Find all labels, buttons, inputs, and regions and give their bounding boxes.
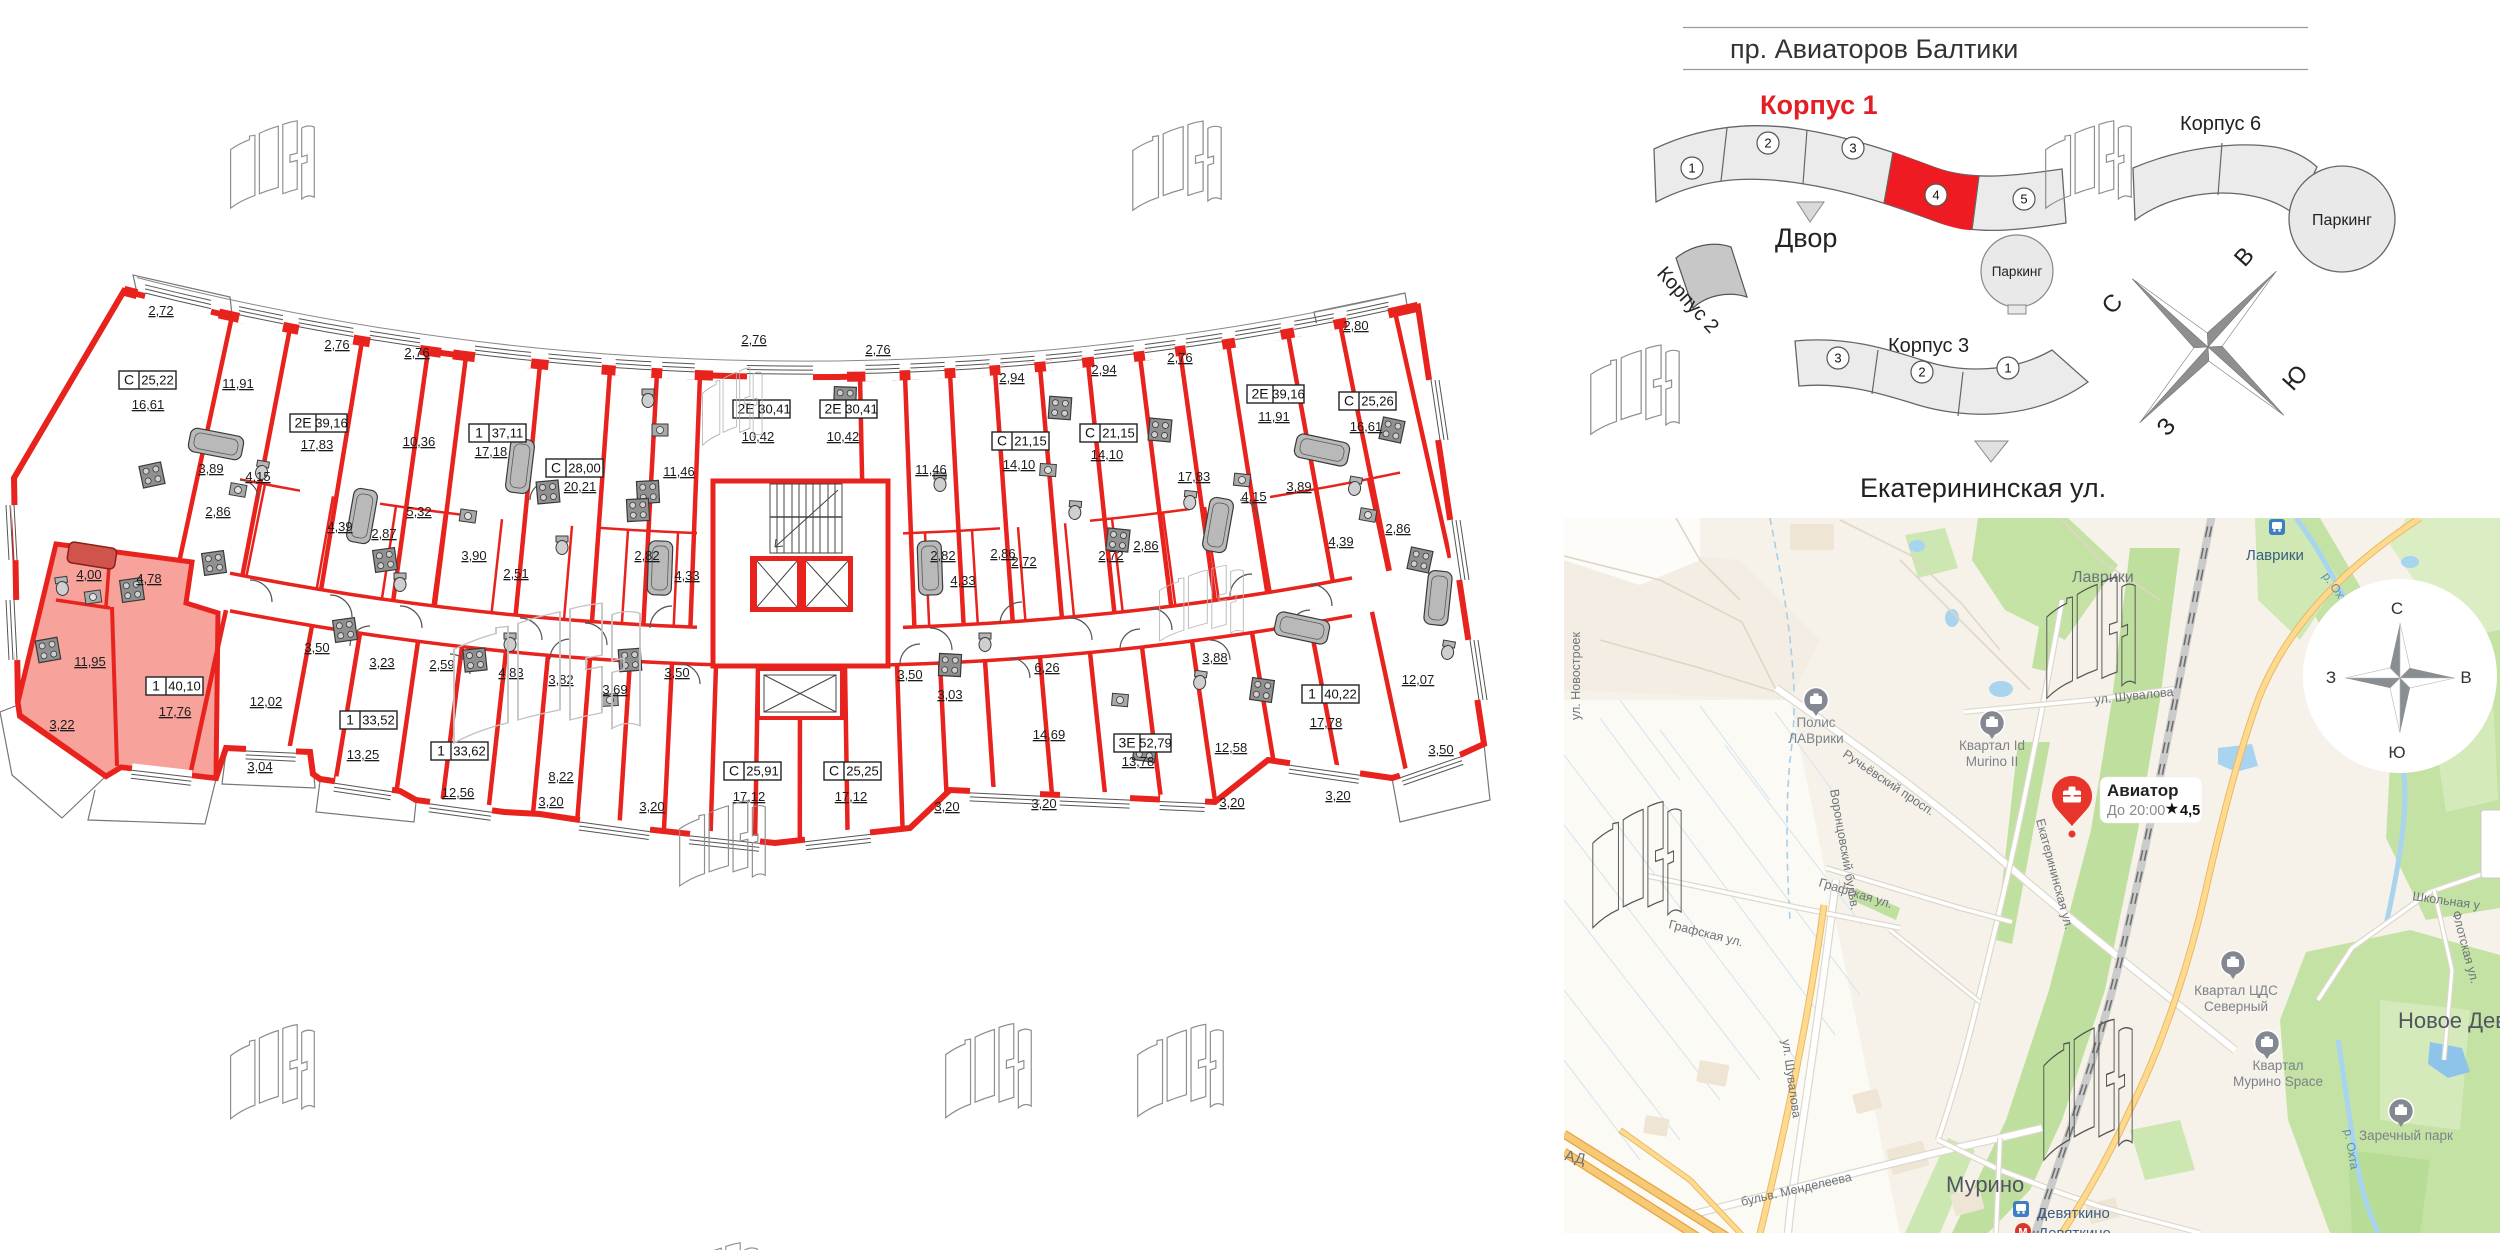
svg-text:До 20:00: До 20:00 [2107, 803, 2165, 819]
svg-text:3,88: 3,88 [1202, 650, 1227, 665]
svg-text:17,12: 17,12 [835, 789, 868, 804]
svg-text:Екатерининская ул.: Екатерининская ул. [1860, 473, 2106, 503]
svg-text:2,94: 2,94 [999, 370, 1024, 385]
svg-text:Ю: Ю [2388, 743, 2405, 762]
svg-text:8,22: 8,22 [548, 769, 573, 784]
svg-text:3,04: 3,04 [247, 759, 272, 774]
svg-text:16,61: 16,61 [1350, 419, 1383, 434]
svg-text:2,82: 2,82 [634, 548, 659, 563]
svg-text:2: 2 [1918, 365, 1925, 380]
svg-text:Авиатор: Авиатор [2107, 781, 2179, 800]
svg-text:21,15: 21,15 [1102, 426, 1135, 441]
svg-text:4: 4 [1932, 188, 1939, 203]
svg-text:4,39: 4,39 [327, 519, 352, 534]
svg-text:2,76: 2,76 [404, 345, 429, 360]
svg-text:1: 1 [475, 425, 483, 441]
svg-text:пр. Авиаторов Балтики: пр. Авиаторов Балтики [1730, 34, 2018, 64]
svg-text:4,33: 4,33 [950, 573, 975, 588]
svg-text:ул. Новостроек: ул. Новостроек [1569, 632, 1583, 720]
svg-text:Мурино Space: Мурино Space [2233, 1074, 2323, 1089]
svg-text:Лаврики: Лаврики [2072, 569, 2134, 586]
svg-text:4,33: 4,33 [674, 568, 699, 583]
svg-text:Квартал Id: Квартал Id [1959, 738, 2025, 753]
svg-text:25,22: 25,22 [141, 373, 174, 388]
svg-text:2,72: 2,72 [1098, 548, 1123, 563]
svg-text:3,20: 3,20 [639, 799, 664, 814]
svg-text:1: 1 [437, 743, 445, 759]
svg-text:2,86: 2,86 [1133, 538, 1158, 553]
svg-text:3,23: 3,23 [369, 655, 394, 670]
svg-text:Полис: Полис [1796, 715, 1835, 730]
svg-text:2,76: 2,76 [324, 337, 349, 352]
svg-text:С: С [997, 433, 1007, 449]
svg-text:2Е: 2Е [1251, 386, 1268, 402]
svg-text:3,50: 3,50 [304, 640, 329, 655]
svg-text:1: 1 [1308, 686, 1316, 702]
svg-text:3: 3 [1834, 351, 1841, 366]
svg-text:1: 1 [1688, 161, 1695, 176]
svg-text:С: С [1085, 425, 1095, 441]
svg-text:4,39: 4,39 [1328, 534, 1353, 549]
svg-text:ЛАВрики: ЛАВрики [1788, 731, 1843, 746]
svg-text:6,26: 6,26 [1034, 660, 1059, 675]
svg-text:2,80: 2,80 [1343, 318, 1368, 333]
svg-text:2,59: 2,59 [429, 657, 454, 672]
svg-text:10,42: 10,42 [827, 429, 860, 444]
svg-text:39,16: 39,16 [315, 416, 348, 431]
svg-text:16,61: 16,61 [132, 397, 165, 412]
svg-text:Мурино: Мурино [1946, 1172, 2024, 1197]
svg-text:Квартал ЦДС: Квартал ЦДС [2194, 983, 2278, 998]
svg-text:40,10: 40,10 [168, 679, 201, 694]
svg-text:30,41: 30,41 [758, 402, 791, 417]
svg-text:17,18: 17,18 [475, 444, 508, 459]
svg-text:3,20: 3,20 [1031, 796, 1056, 811]
svg-text:11,46: 11,46 [915, 462, 947, 477]
svg-text:2,51: 2,51 [503, 566, 528, 581]
svg-text:10,36: 10,36 [403, 434, 436, 449]
svg-text:С: С [551, 460, 561, 476]
svg-text:25,26: 25,26 [1361, 394, 1394, 409]
svg-text:Паркинг: Паркинг [2312, 212, 2372, 229]
svg-text:4,83: 4,83 [498, 665, 523, 680]
svg-text:11,46: 11,46 [663, 464, 695, 479]
svg-text:30,41: 30,41 [845, 402, 878, 417]
svg-text:С: С [124, 372, 134, 388]
svg-text:1: 1 [346, 712, 354, 728]
svg-text:2,72: 2,72 [148, 303, 173, 318]
svg-text:17,83: 17,83 [1178, 469, 1211, 484]
svg-text:17,76: 17,76 [159, 704, 192, 719]
svg-text:37,11: 37,11 [492, 426, 524, 441]
svg-text:13,25: 13,25 [347, 747, 380, 762]
svg-text:3,50: 3,50 [1428, 742, 1453, 757]
svg-text:4,5: 4,5 [2180, 803, 2200, 819]
svg-text:3,50: 3,50 [897, 667, 922, 682]
svg-text:3,90: 3,90 [461, 548, 486, 563]
svg-text:Паркинг: Паркинг [1992, 264, 2043, 279]
svg-text:С: С [829, 763, 839, 779]
svg-text:3,69: 3,69 [602, 682, 627, 697]
svg-text:28,00: 28,00 [568, 461, 601, 476]
svg-text:Лаврики: Лаврики [2246, 547, 2304, 564]
svg-text:5,32: 5,32 [406, 504, 431, 519]
svg-text:С: С [2391, 599, 2403, 618]
svg-text:14,10: 14,10 [1003, 457, 1036, 472]
svg-text:З: З [2326, 668, 2336, 687]
svg-text:3,22: 3,22 [49, 717, 74, 732]
svg-text:14,69: 14,69 [1033, 727, 1066, 742]
svg-text:4,00: 4,00 [76, 567, 101, 582]
svg-text:25,91: 25,91 [746, 764, 779, 779]
svg-text:С: С [729, 763, 739, 779]
svg-text:3,20: 3,20 [538, 794, 563, 809]
svg-text:В: В [2460, 668, 2471, 687]
svg-text:33,62: 33,62 [453, 744, 486, 759]
svg-text:12,58: 12,58 [1215, 740, 1248, 755]
svg-text:17,83: 17,83 [301, 437, 334, 452]
svg-text:12,56: 12,56 [442, 785, 475, 800]
svg-text:11,91: 11,91 [1258, 409, 1290, 424]
svg-text:Девяткино: Девяткино [2037, 1205, 2110, 1222]
svg-text:5: 5 [2020, 192, 2027, 207]
svg-text:11,91: 11,91 [222, 376, 254, 391]
svg-text:3,03: 3,03 [937, 687, 962, 702]
svg-text:2,72: 2,72 [1011, 554, 1036, 569]
svg-text:2,94: 2,94 [1091, 362, 1116, 377]
svg-text:Корпус 6: Корпус 6 [2180, 113, 2261, 135]
svg-text:14,10: 14,10 [1091, 447, 1124, 462]
svg-text:25,25: 25,25 [846, 764, 879, 779]
svg-text:12,07: 12,07 [1402, 672, 1435, 687]
svg-text:Заречный парк: Заречный парк [2359, 1128, 2453, 1143]
svg-text:2,82: 2,82 [930, 548, 955, 563]
svg-text:3,20: 3,20 [934, 799, 959, 814]
svg-text:2,76: 2,76 [1167, 350, 1192, 365]
svg-text:3,89: 3,89 [1286, 479, 1311, 494]
svg-text:17,78: 17,78 [1310, 715, 1343, 730]
svg-text:2: 2 [1764, 136, 1771, 151]
svg-text:4,15: 4,15 [1241, 489, 1266, 504]
svg-text:17,12: 17,12 [733, 789, 766, 804]
svg-text:1: 1 [2004, 361, 2011, 376]
svg-text:39,16: 39,16 [1272, 387, 1305, 402]
svg-text:3: 3 [1849, 141, 1856, 156]
svg-text:10,42: 10,42 [742, 429, 775, 444]
svg-text:4,15: 4,15 [245, 469, 270, 484]
svg-text:2,86: 2,86 [205, 504, 230, 519]
svg-text:3,20: 3,20 [1219, 795, 1244, 810]
svg-text:33,52: 33,52 [362, 713, 395, 728]
svg-text:4,78: 4,78 [136, 571, 161, 586]
svg-text:Murino II: Murino II [1966, 754, 2019, 769]
svg-text:Квартал: Квартал [2252, 1058, 2303, 1073]
svg-text:11,95: 11,95 [74, 654, 106, 669]
svg-text:Северный: Северный [2204, 999, 2268, 1014]
svg-text:2Е: 2Е [824, 401, 841, 417]
svg-text:2,76: 2,76 [741, 332, 766, 347]
svg-text:Новое Девят: Новое Девят [2398, 1008, 2500, 1033]
svg-text:2,76: 2,76 [865, 342, 890, 357]
svg-text:12,02: 12,02 [250, 694, 283, 709]
svg-text:2Е: 2Е [294, 415, 311, 431]
svg-text:3,89: 3,89 [198, 461, 223, 476]
svg-text:20,21: 20,21 [564, 479, 597, 494]
svg-text:13,78: 13,78 [1122, 754, 1155, 769]
svg-text:40,22: 40,22 [1324, 687, 1357, 702]
svg-text:Двор: Двор [1775, 223, 1837, 253]
svg-text:21,15: 21,15 [1014, 434, 1047, 449]
svg-text:3,50: 3,50 [664, 665, 689, 680]
svg-text:52,79: 52,79 [1139, 736, 1172, 751]
svg-text:1: 1 [152, 678, 160, 694]
svg-text:2,86: 2,86 [1385, 521, 1410, 536]
svg-text:Корпус 1: Корпус 1 [1760, 90, 1878, 120]
svg-text:2,87: 2,87 [371, 526, 396, 541]
svg-text:С: С [1344, 393, 1354, 409]
svg-text:3,20: 3,20 [1325, 788, 1350, 803]
svg-text:3Е: 3Е [1118, 735, 1135, 751]
